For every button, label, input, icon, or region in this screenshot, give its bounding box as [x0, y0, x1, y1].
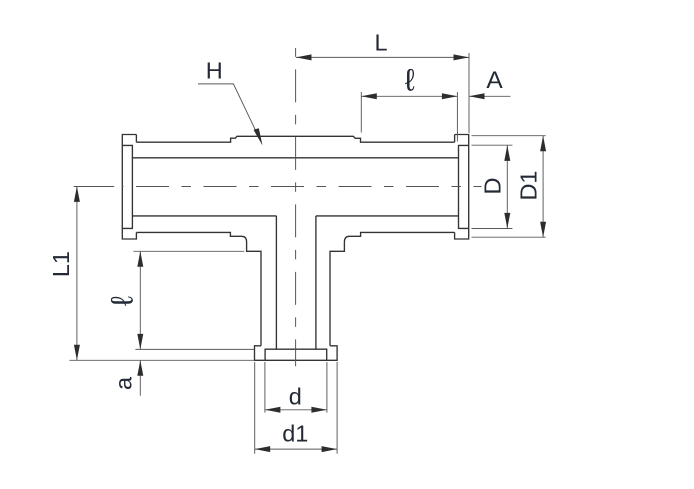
- svg-text:a: a: [110, 376, 136, 390]
- svg-text:ℓ: ℓ: [405, 63, 415, 98]
- svg-text:d1: d1: [282, 421, 308, 447]
- svg-text:d: d: [289, 384, 302, 410]
- svg-text:A: A: [486, 67, 503, 94]
- svg-text:L1: L1: [48, 251, 74, 277]
- svg-text:D: D: [480, 178, 506, 195]
- svg-text:H: H: [206, 58, 223, 84]
- svg-text:L: L: [374, 30, 387, 56]
- svg-text:D1: D1: [515, 170, 541, 200]
- svg-text:ℓ: ℓ: [105, 296, 140, 306]
